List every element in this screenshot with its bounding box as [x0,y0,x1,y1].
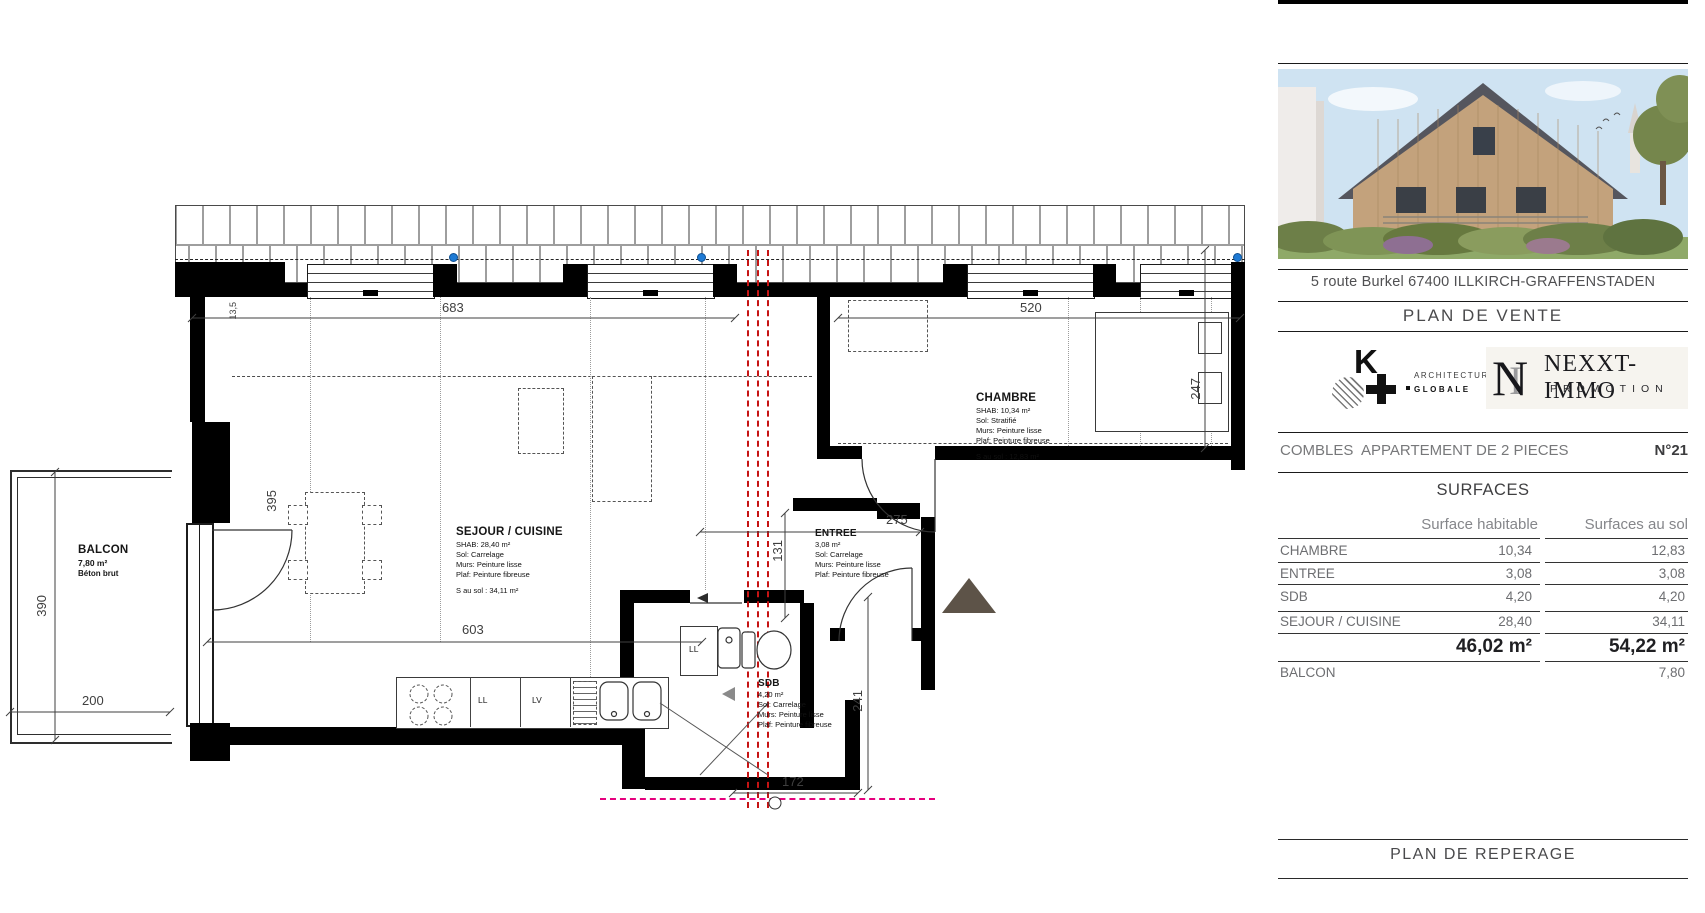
plan-de-vente-page: BALCON 7,80 m² Béton brut SEJOUR / CUISI… [0,0,1705,913]
room-plaf: Plaf: Peinture fibreuse [815,570,889,580]
apartment-number: N°21 [1654,442,1688,459]
room-murs: Murs: Peinture lisse [456,560,563,570]
floor-plan: BALCON 7,80 m² Béton brut SEJOUR / CUISI… [0,0,1260,913]
room-plaf: Plaf: Peinture fibreuse [456,570,563,580]
plus-icon [1377,374,1386,404]
surface-row-sol: 4,20 [1659,589,1685,604]
wall-left-upper [190,297,205,422]
sdb-label: SDB 4,20 m² Sol: Carrelage Murs: Peintur… [758,677,832,731]
divider [1278,472,1688,473]
promoter-subtitle: PROMOTION [1550,383,1669,395]
monogram-n: N [1492,349,1528,407]
total-habitable: 46,02 m² [1456,636,1532,658]
room-sol: Sol: Carrelage [758,700,832,710]
dim-131: 131 [770,540,785,562]
wall-sdb-top-right [744,590,804,603]
marker-dot [1233,253,1242,262]
sdb-leader-arrow [722,687,735,701]
room-area: 7,80 m² [78,558,128,569]
window-post [433,264,457,297]
surface-row-hab: 28,40 [1498,614,1532,629]
room-sol: Sol: Carrelage [456,550,563,560]
chair [288,560,308,580]
balcon-label: BALCON 7,80 m² Béton brut [78,543,128,579]
room-murs: Murs: Peinture lisse [815,560,889,570]
wall-landing-right [921,628,935,690]
washing-machine-box [680,626,718,676]
room-floor: Béton brut [78,569,128,579]
wall-stair-right [845,700,860,790]
architect-logo: K ARCHITECTURE GLOBALE [1330,349,1488,413]
table-line [1278,538,1540,539]
surface-row-hab: 10,34 [1498,543,1532,558]
appliance-label-ll2: LL [689,644,698,654]
table-line [1545,611,1688,612]
footer-title: PLAN DE REPERAGE [1278,846,1688,864]
total-au-sol: 54,22 m² [1609,636,1685,658]
wall-sdb-top-left [634,590,690,603]
window-post [1093,264,1116,297]
balcony-door [186,523,214,727]
room-ssol: S au sol : 34,11 m² [456,586,563,596]
entrance-arrow [942,578,996,613]
dim-603: 603 [462,622,484,637]
divider [1278,301,1688,302]
room-name: BALCON [78,543,128,558]
dim-241: 241 [850,690,865,712]
wall-stair-left [622,727,645,789]
wall-stair-bottom [645,777,860,790]
dim-247: 247 [1188,378,1203,400]
sejour-label: SEJOUR / CUISINE SHAB: 28,40 m² Sol: Car… [456,525,563,596]
surface-row-sol: 12,83 [1651,543,1685,558]
window-post [713,264,737,297]
room-shab: 4,20 m² [758,690,832,700]
roof-dashed-line [175,259,1245,260]
room-name: CHAMBRE [976,391,1050,406]
surface-row-label: CHAMBRE [1280,543,1348,558]
pink-limit-line [600,798,935,800]
window-post [943,264,967,297]
table-line [1545,584,1688,585]
square-bullet-icon [1406,386,1410,390]
roof-window [967,264,1095,299]
surface-row-label: SEJOUR / CUISINE [1280,614,1401,629]
divider [1278,878,1688,879]
hatched-sphere-icon [1332,377,1364,409]
chair [288,505,308,525]
dim-13-5: 13,5 [228,302,238,320]
room-murs: Murs: Peinture lisse [758,710,832,720]
dim-200: 200 [82,693,104,708]
surface-row-hab: 3,08 [1506,566,1532,581]
divider [1278,63,1688,64]
surface-row-sol: 34,11 [1652,614,1685,629]
surface-row-sol: 3,08 [1659,566,1685,581]
table-line [1278,611,1540,612]
info-sidebar: 5 route Burkel 67400 ILLKIRCH-GRAFFENSTA… [1278,0,1688,913]
wall-entree-right [921,517,935,640]
wall-corner-topleft [175,262,285,297]
guide-line [440,297,441,642]
entree-label: ENTREE 3,08 m² Sol: Carrelage Murs: Pein… [815,527,889,581]
room-plaf: Plaf: Peinture fibreuse [758,720,832,730]
wall-left-block [192,422,230,523]
sofa [592,376,652,502]
surfaces-title: SURFACES [1278,481,1688,500]
wall-bottom-sejour [190,727,645,745]
dish-rack [573,681,597,725]
room-plaf: Plaf: Peinture fibreuse [976,436,1050,446]
table-line [1278,562,1540,563]
red-axis-line [747,250,749,808]
pillow [1198,322,1222,354]
wall-chambre-stub [817,446,862,459]
marker-dot [449,253,458,262]
room-name: SEJOUR / CUISINE [456,525,563,540]
ni-monogram-icon: I N [1492,349,1540,405]
promoter-logo: I N NEXXT-IMMO PROMOTION [1486,347,1688,409]
roof-window [307,264,435,299]
divider [1278,432,1688,433]
table-line [1545,661,1688,662]
chambre-label: CHAMBRE SHAB: 10,34 m² Sol: Stratifié Mu… [976,391,1050,462]
counter-divider [470,677,471,727]
wall-entree-top [793,498,877,511]
attic-line [232,376,812,377]
table-line [1278,661,1540,662]
roof-window [587,264,715,299]
room-shab: SHAB: 28,40 m² [456,540,563,550]
dim-520: 520 [1020,300,1042,315]
table-line [1278,584,1540,585]
table-line [1545,562,1688,563]
room-name: SDB [758,677,832,690]
room-shab: SHAB: 10,34 m² [976,406,1050,416]
wall-right-chambre [1231,262,1245,470]
table-line [1545,633,1688,634]
chair [362,560,382,580]
surface-row-hab: 4,20 [1506,589,1532,604]
room-ssol: S au sol : 12,83 m² [976,452,1050,462]
roof-window [1140,264,1234,299]
dining-table [305,492,365,594]
divider [1278,331,1688,332]
room-sol: Sol: Carrelage [815,550,889,560]
apartment-type: APPARTEMENT DE 2 PIECES [1361,442,1569,459]
dim-275: 275 [886,512,908,527]
window-post [563,264,587,297]
pocket-door-arrow [697,593,708,603]
top-bar [1278,0,1688,4]
column-header-habitable: Surface habitable [1421,516,1538,533]
surface-row-label: SDB [1280,589,1308,604]
room-sol: Sol: Stratifié [976,416,1050,426]
building-rendering [1278,69,1688,259]
address: 5 route Burkel 67400 ILLKIRCH-GRAFFENSTA… [1278,274,1688,290]
divider [1278,839,1688,840]
surface-row-label: ENTREE [1280,566,1335,581]
dim-390: 390 [34,595,49,617]
guide-line [1068,297,1069,446]
wall-chambre-left [817,297,830,459]
room-shab: 3,08 m² [815,540,889,550]
marker-dot [697,253,706,262]
counter-divider [520,677,521,727]
guide-line [590,297,591,677]
armchair [518,388,564,454]
logo-letter-k: K [1354,343,1378,381]
column-header-au-sol: Surfaces au sol [1585,516,1688,533]
balcon-row-sol: 7,80 [1659,665,1685,680]
wall-entree-bottom-a [830,628,845,641]
table-line [1278,633,1540,634]
counter-divider [570,677,571,727]
wardrobe [848,300,928,352]
room-name: ENTREE [815,527,889,540]
divider [1278,269,1688,270]
guide-line [705,297,706,590]
table-line [1545,538,1688,539]
apartment-level: COMBLES [1280,442,1353,459]
architect-logo-line2: GLOBALE [1414,385,1471,394]
promoter-name: NEXXT-IMMO [1544,351,1688,405]
plan-title: PLAN DE VENTE [1278,306,1688,326]
room-murs: Murs: Peinture lisse [976,426,1050,436]
chair [362,505,382,525]
balcon-row-label: BALCON [1280,665,1336,680]
appliance-label-lv: LV [532,695,542,705]
architect-logo-line1: ARCHITECTURE [1414,371,1496,380]
dim-395: 395 [264,490,279,512]
appliance-label-ll: LL [478,695,487,705]
dim-172: 172 [782,774,804,789]
dim-683: 683 [442,300,464,315]
